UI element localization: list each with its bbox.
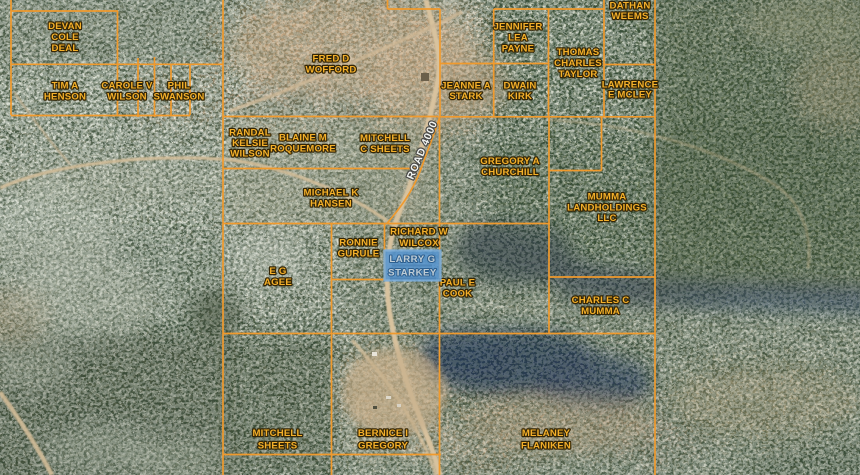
svg-text:CHURCHILL: CHURCHILL	[481, 167, 539, 178]
svg-text:TAYLOR: TAYLOR	[558, 69, 597, 80]
svg-text:LARRY G: LARRY G	[389, 254, 435, 265]
svg-text:DATHAN: DATHAN	[610, 1, 651, 12]
svg-text:E MCLEY: E MCLEY	[608, 90, 652, 101]
svg-text:LANDHOLDINGS: LANDHOLDINGS	[567, 203, 647, 214]
svg-text:C SHEETS: C SHEETS	[360, 144, 410, 155]
svg-text:WILSON: WILSON	[230, 149, 270, 160]
svg-text:RICHARD W: RICHARD W	[390, 227, 449, 238]
svg-text:KIRK: KIRK	[508, 91, 532, 102]
svg-text:KELSIE: KELSIE	[232, 138, 268, 149]
svg-text:CHARLES C: CHARLES C	[572, 295, 630, 306]
svg-text:FLANIKEN: FLANIKEN	[521, 441, 571, 452]
svg-text:ROQUEMORE: ROQUEMORE	[270, 144, 336, 155]
svg-text:GREGORY: GREGORY	[358, 441, 408, 452]
svg-text:MELANEY: MELANEY	[522, 428, 571, 439]
svg-text:MITCHELL: MITCHELL	[252, 428, 302, 439]
svg-text:AGEE: AGEE	[264, 277, 292, 288]
svg-text:RONNIE: RONNIE	[339, 238, 378, 249]
svg-text:WOFFORD: WOFFORD	[306, 65, 357, 76]
svg-text:JEANNE A: JEANNE A	[441, 81, 491, 92]
svg-text:PAUL E: PAUL E	[440, 278, 476, 289]
svg-text:LLC: LLC	[597, 213, 616, 224]
svg-text:GURULE: GURULE	[338, 249, 380, 260]
svg-text:WILSON: WILSON	[107, 92, 147, 103]
svg-text:COLE: COLE	[51, 32, 79, 43]
svg-text:DWAIN: DWAIN	[504, 81, 537, 92]
svg-text:PAYNE: PAYNE	[502, 44, 535, 55]
svg-text:MITCHELL: MITCHELL	[360, 133, 410, 144]
svg-text:JENNIFER: JENNIFER	[493, 22, 542, 33]
svg-text:STARK: STARK	[449, 91, 482, 102]
svg-text:LEA: LEA	[508, 33, 528, 44]
svg-text:COOK: COOK	[443, 289, 473, 300]
svg-text:MUMMA: MUMMA	[581, 306, 620, 317]
svg-text:CAROLE V: CAROLE V	[101, 81, 153, 92]
svg-text:E G: E G	[269, 266, 286, 277]
svg-text:SHEETS: SHEETS	[258, 441, 298, 452]
svg-text:CHARLES: CHARLES	[554, 58, 602, 69]
svg-text:HANSEN: HANSEN	[310, 199, 352, 210]
svg-text:RANDAL: RANDAL	[229, 128, 271, 139]
svg-text:WEEMS: WEEMS	[611, 11, 649, 22]
svg-text:MUMMA: MUMMA	[588, 192, 627, 203]
svg-text:SWANSON: SWANSON	[154, 92, 205, 103]
svg-text:FRED D: FRED D	[313, 54, 350, 65]
svg-text:THOMAS: THOMAS	[557, 47, 600, 58]
svg-text:DEAL: DEAL	[52, 43, 79, 54]
svg-text:WILCOX: WILCOX	[399, 238, 439, 249]
svg-text:HENSON: HENSON	[44, 92, 86, 103]
svg-text:BERNICE I: BERNICE I	[358, 428, 408, 439]
svg-text:TIM A: TIM A	[52, 81, 79, 92]
svg-text:GREGORY A: GREGORY A	[480, 156, 540, 167]
svg-text:PHIL: PHIL	[168, 81, 191, 92]
svg-text:MICHAEL K: MICHAEL K	[304, 188, 359, 199]
svg-text:BLAINE M: BLAINE M	[279, 133, 327, 144]
svg-text:DEVAN: DEVAN	[48, 21, 82, 32]
svg-text:STARKEY: STARKEY	[388, 268, 437, 279]
